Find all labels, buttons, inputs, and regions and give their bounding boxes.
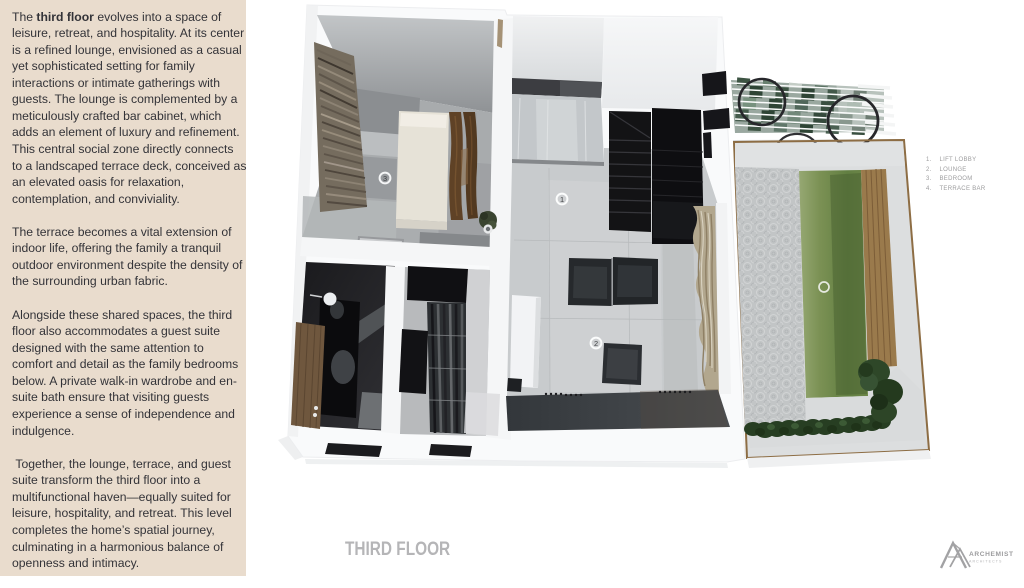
svg-text:3: 3 bbox=[383, 174, 387, 183]
svg-text:ARCHITECTS: ARCHITECTS bbox=[969, 560, 1002, 564]
svg-text:ARCHEMIST: ARCHEMIST bbox=[969, 551, 1014, 558]
svg-text:1: 1 bbox=[560, 195, 564, 204]
svg-text:2: 2 bbox=[594, 339, 598, 348]
